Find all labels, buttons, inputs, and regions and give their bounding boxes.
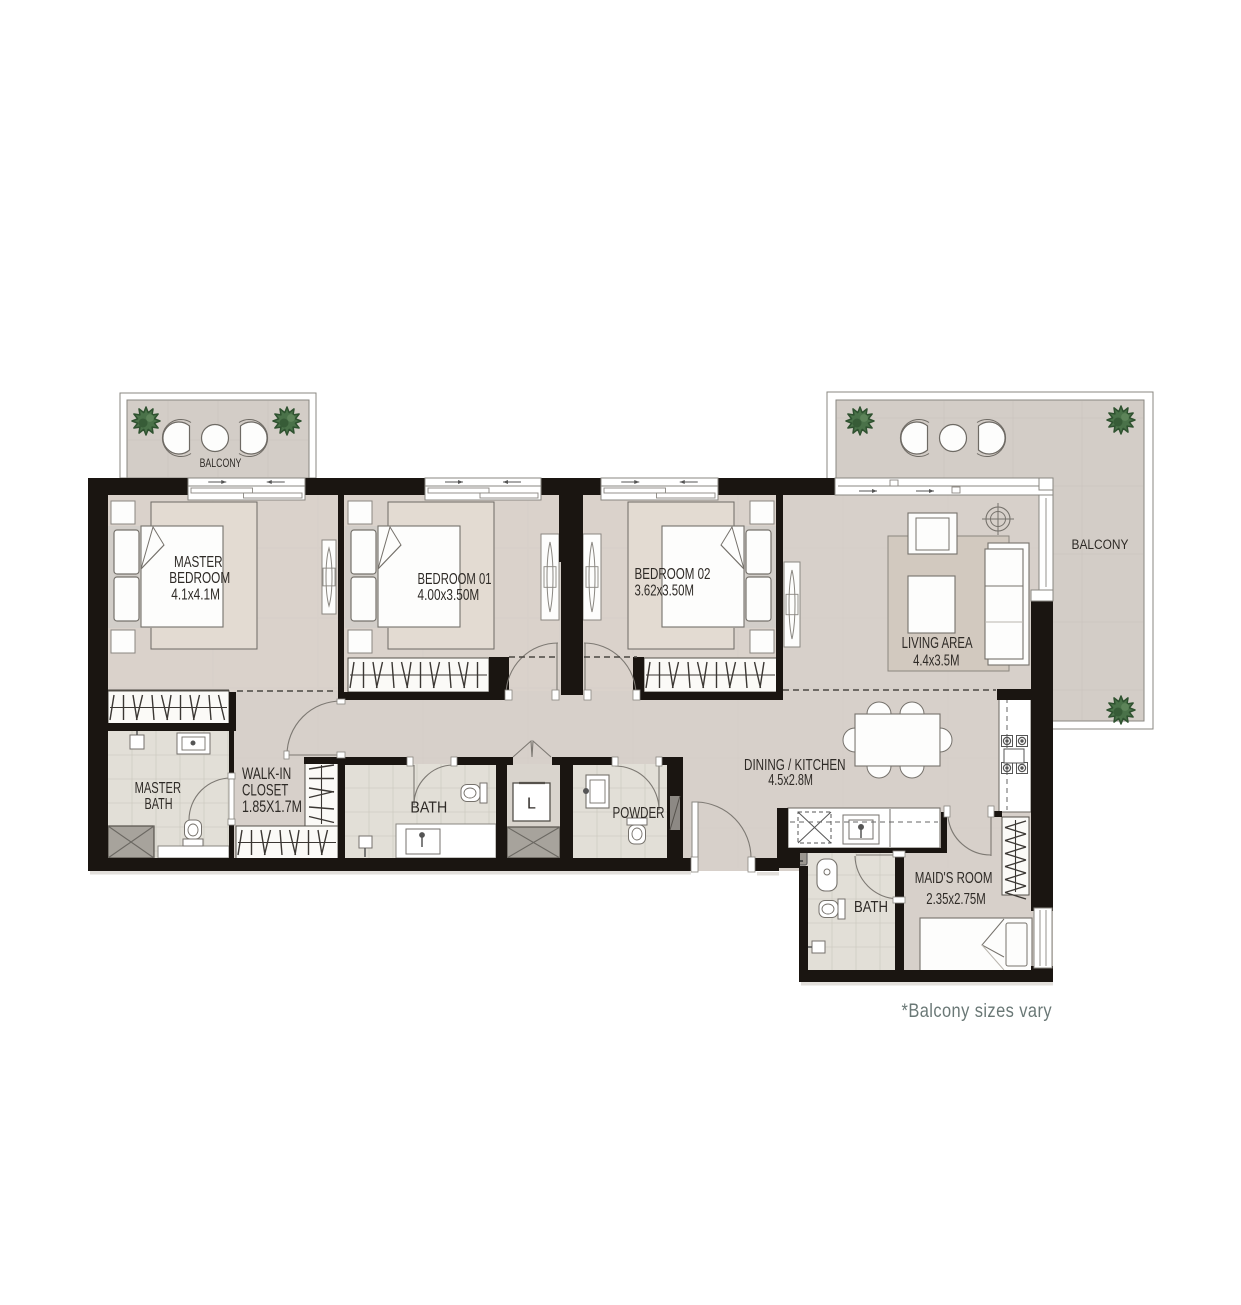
svg-text:4.4x3.5M: 4.4x3.5M: [913, 653, 959, 670]
svg-text:1.85X1.7M: 1.85X1.7M: [242, 797, 302, 816]
svg-text:2.35x2.75M: 2.35x2.75M: [926, 891, 986, 908]
svg-text:4.1x4.1M: 4.1x4.1M: [171, 587, 220, 604]
svg-text:MASTER: MASTER: [174, 554, 223, 571]
svg-text:BATH: BATH: [145, 796, 173, 813]
svg-text:BEDROOM: BEDROOM: [169, 570, 230, 587]
svg-text:BEDROOM 02: BEDROOM 02: [635, 566, 711, 583]
svg-text:BATH: BATH: [410, 800, 447, 817]
svg-text:4.5x2.8M: 4.5x2.8M: [768, 772, 813, 789]
svg-text:BALCONY: BALCONY: [1072, 537, 1129, 552]
svg-text:MASTER: MASTER: [135, 780, 181, 797]
svg-text:POWDER: POWDER: [613, 805, 665, 822]
svg-text:L: L: [527, 796, 536, 813]
svg-text:BALCONY: BALCONY: [200, 458, 242, 470]
svg-text:BEDROOM 01: BEDROOM 01: [418, 571, 492, 588]
svg-text:*Balcony sizes vary: *Balcony sizes vary: [902, 1000, 1053, 1022]
svg-text:BATH: BATH: [854, 899, 888, 916]
svg-text:LIVING AREA: LIVING AREA: [902, 635, 974, 652]
svg-text:3.62x3.50M: 3.62x3.50M: [634, 583, 694, 600]
svg-text:MAID'S ROOM: MAID'S ROOM: [915, 870, 993, 887]
svg-text:4.00x3.50M: 4.00x3.50M: [418, 587, 480, 604]
